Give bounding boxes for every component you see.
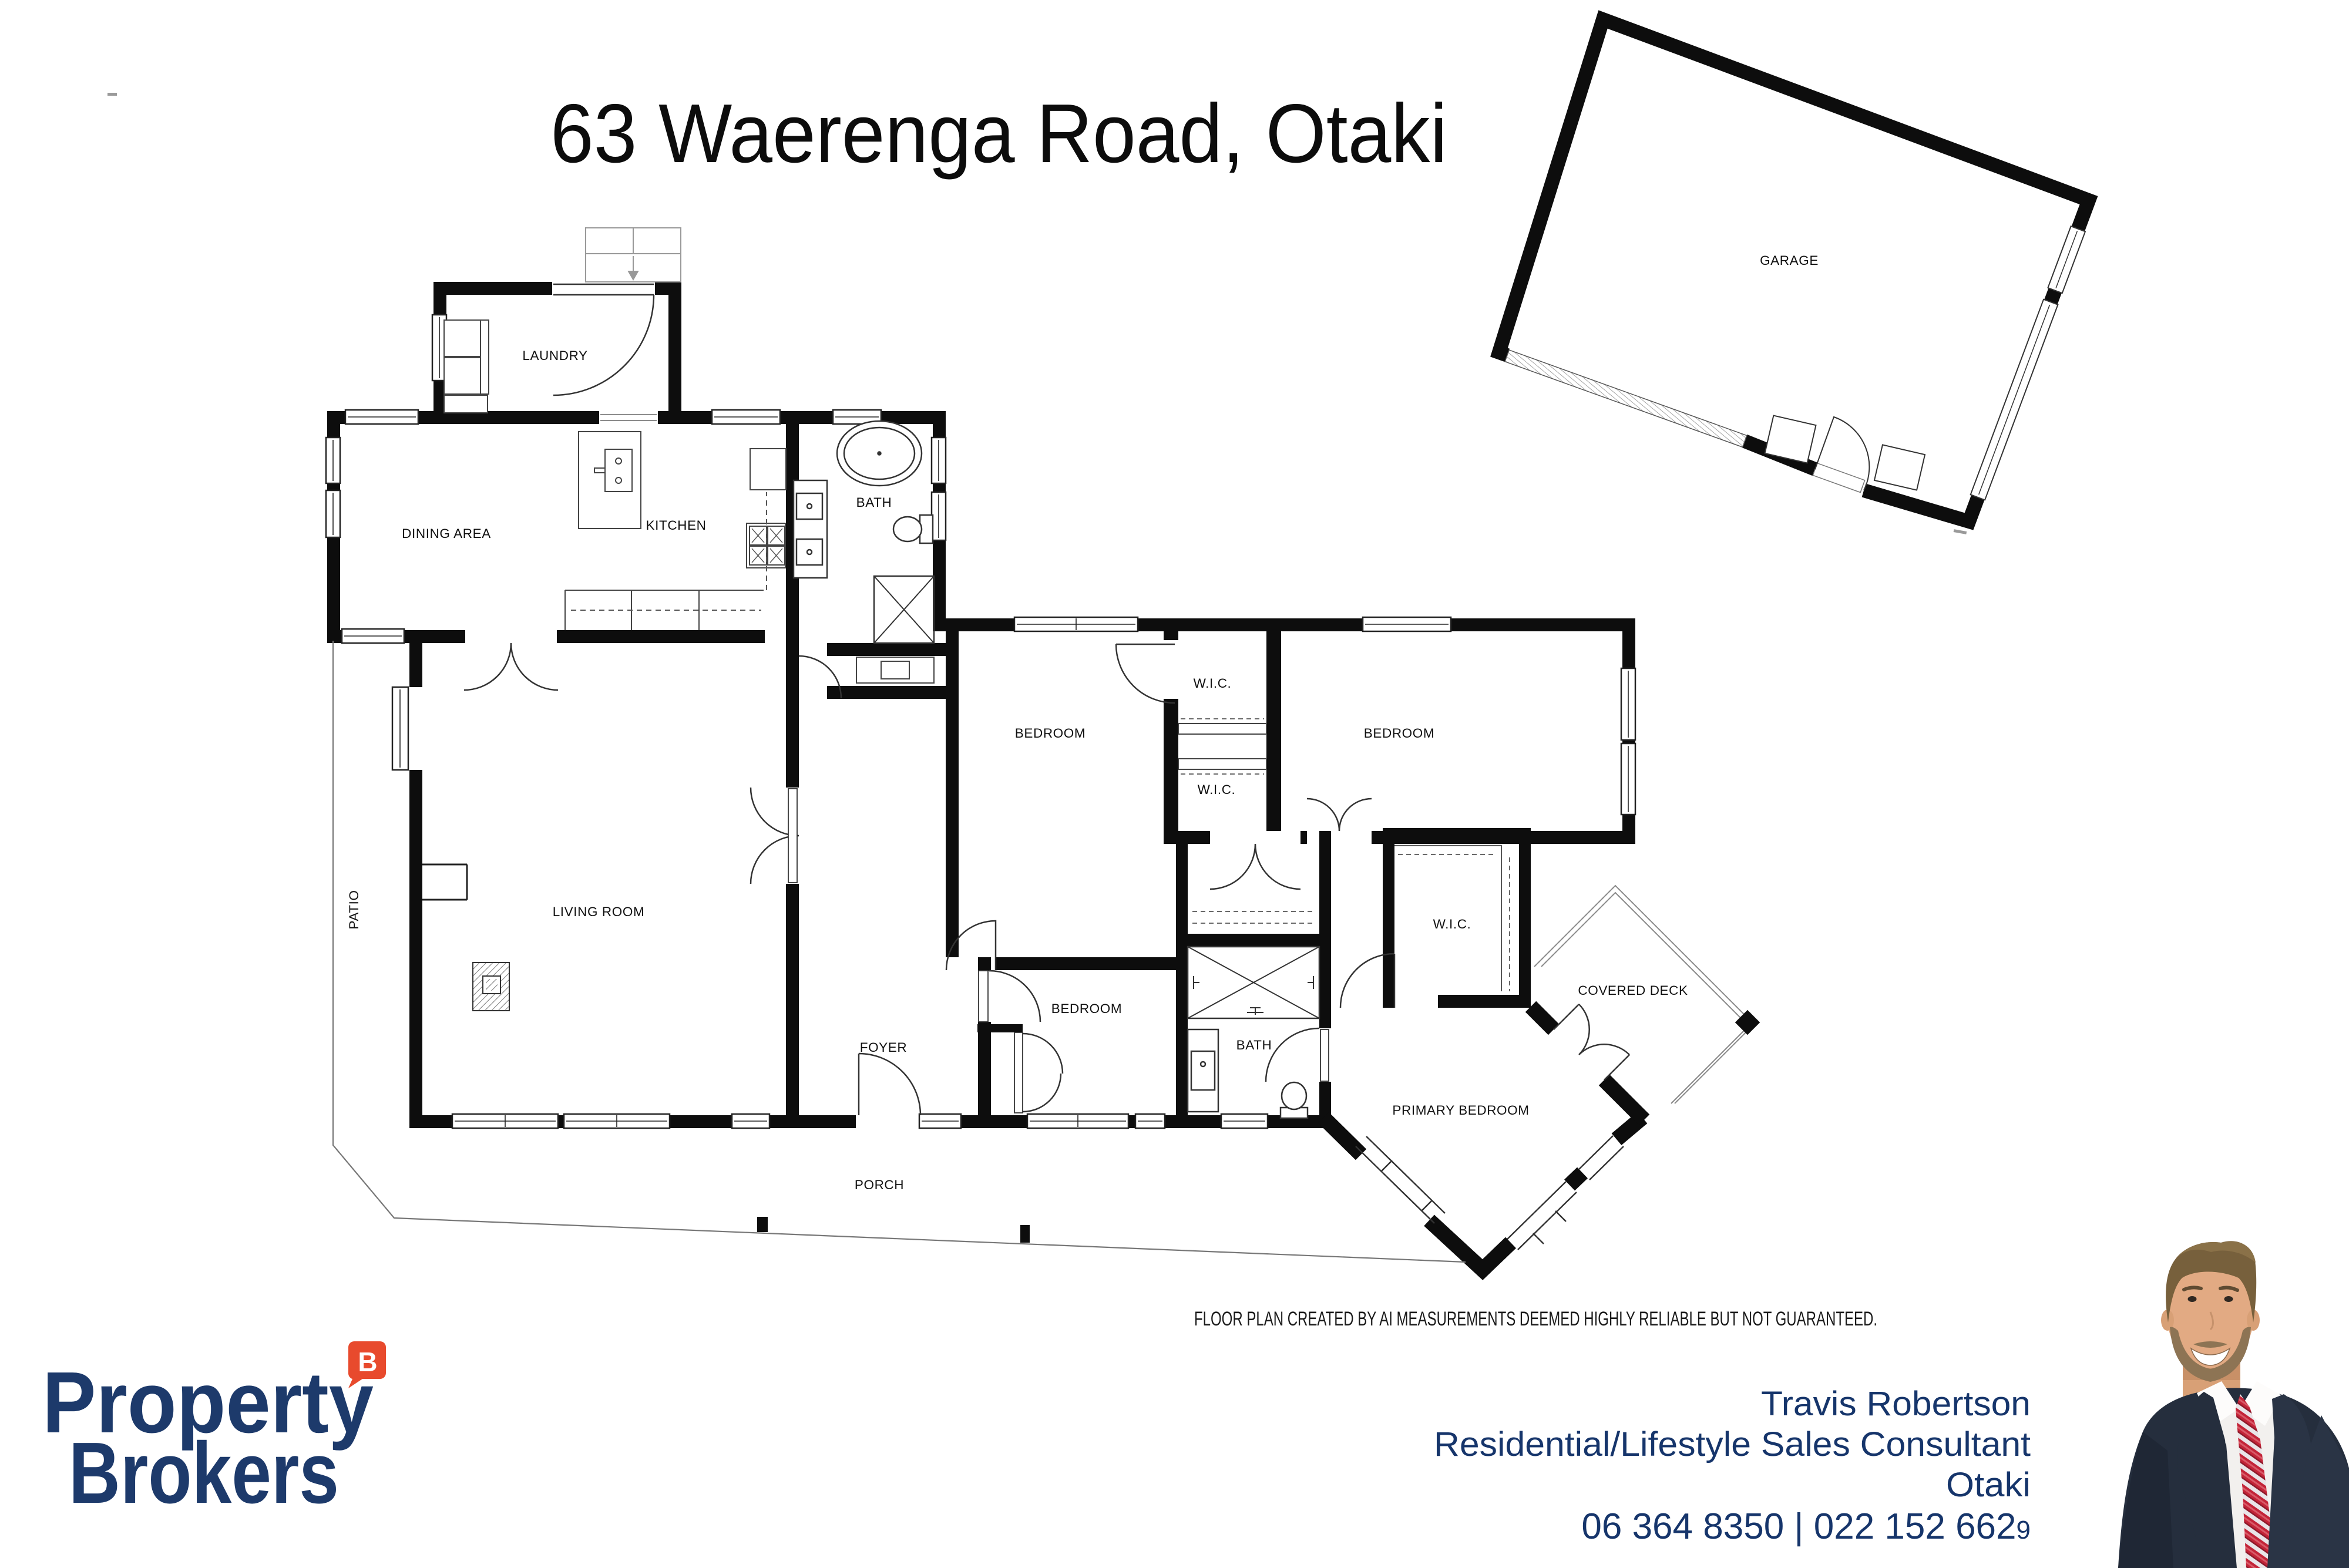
svg-text:Travis Robertson: Travis Robertson	[1761, 1385, 2031, 1423]
svg-text:BEDROOM: BEDROOM	[1015, 726, 1086, 741]
svg-text:Brokers: Brokers	[69, 1425, 339, 1522]
svg-text:06 364 8350 | 022 152 6629: 06 364 8350 | 022 152 6629	[1581, 1506, 2031, 1547]
svg-text:W.I.C.: W.I.C.	[1198, 782, 1236, 797]
svg-text:LIVING ROOM: LIVING ROOM	[553, 904, 645, 919]
svg-text:63 Waerenga Road, Otaki: 63 Waerenga Road, Otaki	[550, 87, 1447, 180]
svg-text:COVERED DECK: COVERED DECK	[1578, 983, 1688, 998]
svg-text:BEDROOM: BEDROOM	[1364, 726, 1434, 741]
svg-text:BATH: BATH	[856, 495, 892, 510]
svg-text:PRIMARY BEDROOM: PRIMARY BEDROOM	[1392, 1103, 1529, 1118]
svg-text:Residential/Lifestyle Sales Co: Residential/Lifestyle Sales Consultant	[1434, 1425, 2031, 1463]
svg-text:DINING AREA: DINING AREA	[402, 526, 491, 541]
svg-text:W.I.C.: W.I.C.	[1433, 917, 1471, 931]
svg-text:W.I.C.: W.I.C.	[1194, 676, 1232, 691]
svg-text:B: B	[358, 1347, 377, 1377]
svg-text:PORCH: PORCH	[855, 1177, 904, 1192]
svg-text:PATIO: PATIO	[347, 890, 361, 929]
svg-text:BEDROOM: BEDROOM	[1051, 1001, 1122, 1016]
svg-text:FLOOR PLAN CREATED BY AI MEASU: FLOOR PLAN CREATED BY AI MEASUREMENTS DE…	[1194, 1308, 1877, 1330]
svg-text:BATH: BATH	[1236, 1038, 1272, 1052]
svg-text:Otaki: Otaki	[1946, 1466, 2031, 1504]
svg-text:FOYER: FOYER	[860, 1040, 908, 1055]
svg-text:GARAGE: GARAGE	[1760, 253, 1819, 268]
svg-text:LAUNDRY: LAUNDRY	[522, 348, 587, 363]
svg-text:KITCHEN: KITCHEN	[646, 518, 707, 533]
